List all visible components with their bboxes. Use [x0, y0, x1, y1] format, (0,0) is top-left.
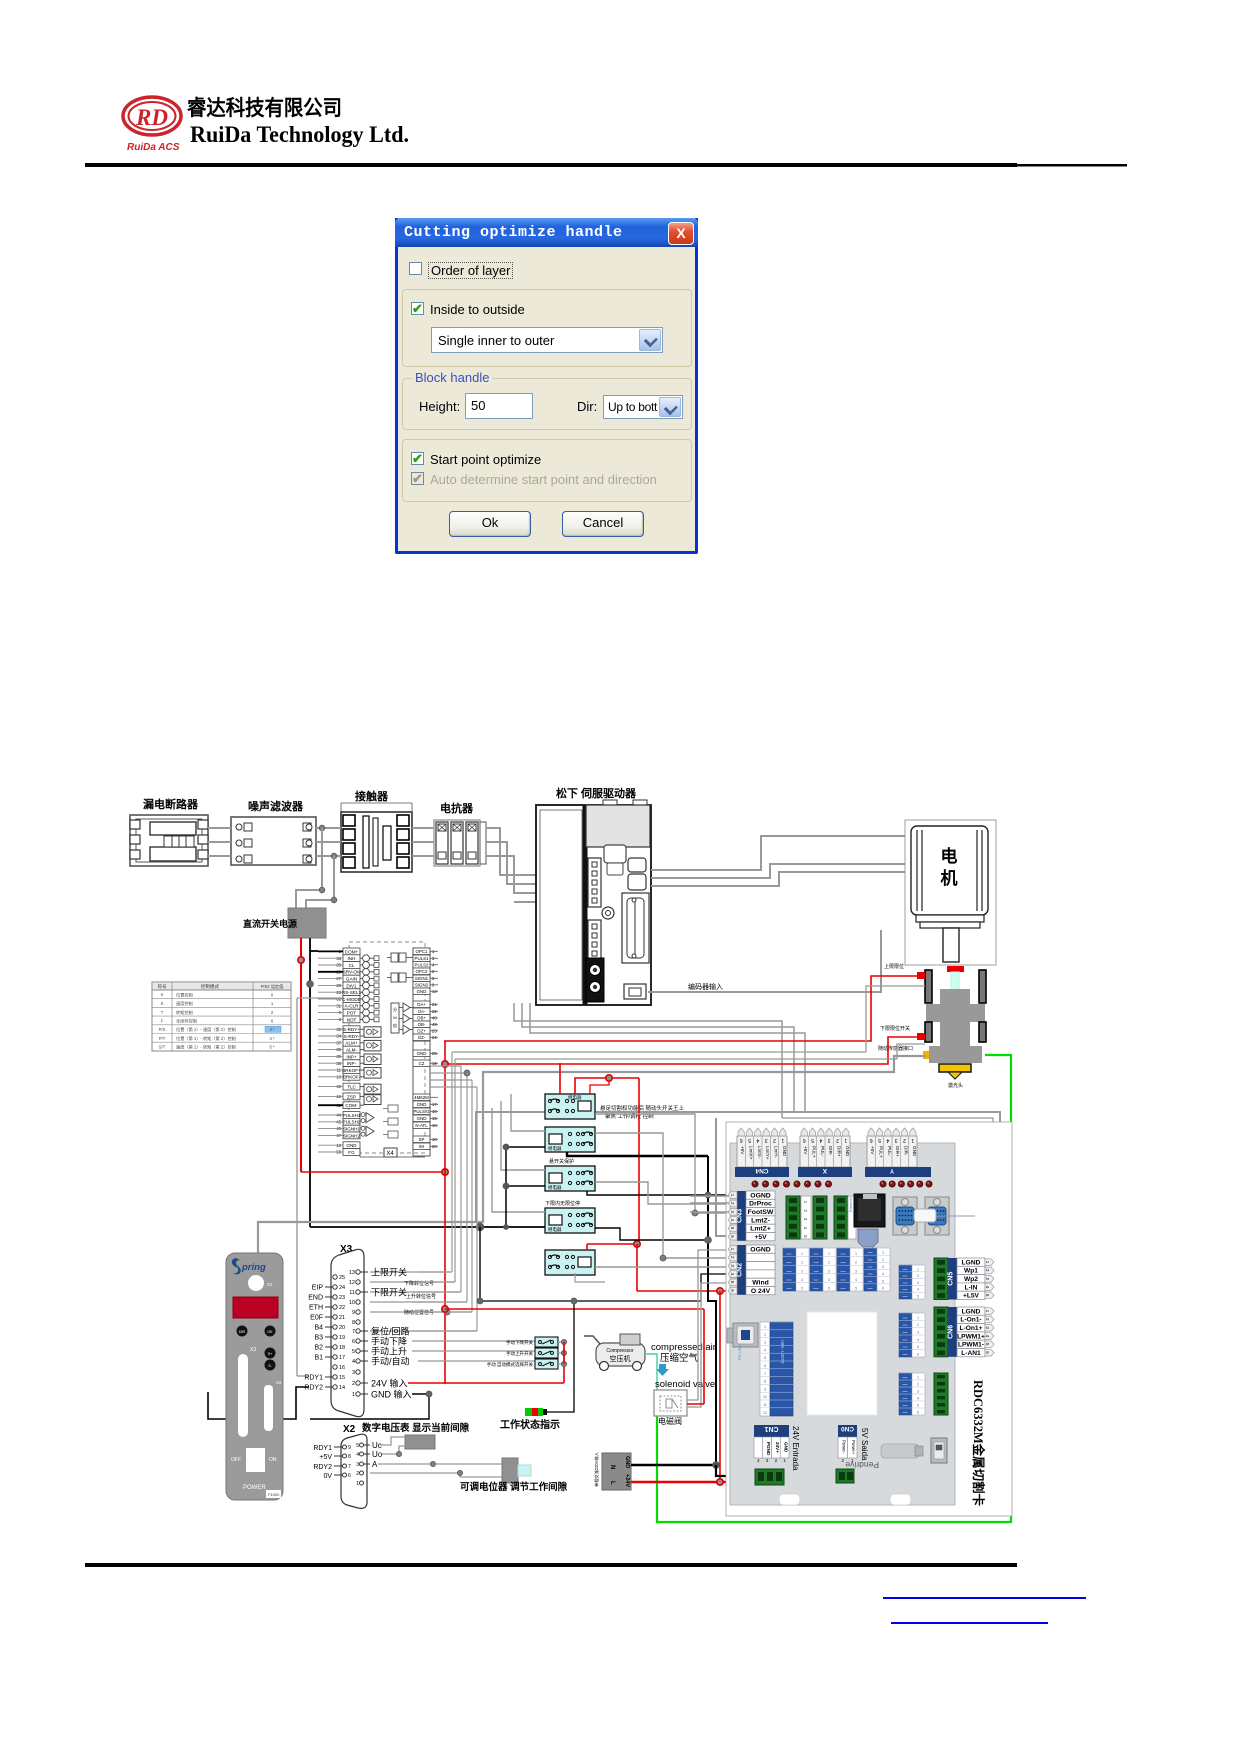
svg-text:下降转位信号: 下降转位信号: [404, 1280, 434, 1287]
svg-text:18: 18: [339, 1345, 345, 1351]
svg-text:LGND: LGND: [962, 1259, 981, 1266]
svg-text:OPC2: OPC2: [416, 969, 429, 974]
svg-text:7: 7: [352, 1329, 355, 1335]
svg-text:1: 1: [917, 1267, 919, 1271]
svg-text:OB-: OB-: [418, 1022, 426, 1027]
svg-text:LmtX-: LmtX-: [757, 1146, 762, 1159]
svg-text:3: 3: [895, 1137, 898, 1143]
svg-text:══: ══: [867, 1287, 873, 1291]
svg-text:位置控制: 位置控制: [176, 991, 193, 998]
svg-text:TLC: TLC: [347, 1085, 356, 1090]
svg-text:20: 20: [339, 1325, 345, 1331]
svg-text:OB+: OB+: [417, 1016, 426, 1021]
svg-text:INP+: INP+: [346, 1054, 357, 1059]
svg-text:接触器: 接触器: [355, 789, 389, 803]
svg-text:P/S: P/S: [159, 1027, 166, 1032]
svg-text:S: S: [161, 1001, 164, 1006]
svg-text:6: 6: [803, 1137, 806, 1143]
svg-text:X1: X1: [267, 1282, 273, 1287]
svg-text:1: 1: [844, 1137, 847, 1143]
svg-text:3: 3: [828, 1137, 831, 1143]
svg-text:══: ══: [840, 1278, 846, 1282]
svg-text:SIGNH1: SIGNH1: [343, 1127, 361, 1132]
svg-text:转矩控制: 转矩控制: [176, 1009, 193, 1016]
svg-text:下限限位开关: 下限限位开关: [880, 1025, 910, 1032]
svg-text:9: 9: [352, 1310, 355, 1316]
svg-text:单相交流220V输入: 单相交流220V输入: [593, 1451, 600, 1487]
svg-text:3: 3: [356, 1462, 359, 1468]
svg-text:8: 8: [352, 1320, 355, 1326]
svg-text:DrProc: DrProc: [749, 1201, 772, 1208]
svg-text:Power-: Power-: [842, 1440, 847, 1454]
svg-text:SIGN2: SIGN2: [415, 983, 429, 988]
svg-text:Uo: Uo: [372, 1450, 383, 1459]
svg-text:空压机: 空压机: [610, 1354, 631, 1363]
svg-text:FG: FG: [348, 1150, 355, 1155]
svg-text:5: 5: [764, 1356, 766, 1360]
svg-text:3: 3: [801, 1269, 803, 1273]
svg-text:SIGN1: SIGN1: [415, 976, 429, 981]
svg-text:LGND: LGND: [962, 1308, 981, 1315]
svg-text:SP: SP: [419, 1137, 425, 1142]
svg-text:══: ══: [902, 1295, 908, 1299]
svg-text:S+: S+: [268, 1352, 273, 1356]
svg-text:CZ: CZ: [419, 1061, 425, 1066]
svg-text:COM+: COM+: [345, 949, 359, 954]
svg-text:控制模式: 控制模式: [201, 983, 219, 990]
svg-text:══: ══: [902, 1345, 908, 1349]
svg-text:24: 24: [339, 1285, 345, 1291]
svg-text:可调电位器 调节工作间隙: 可调电位器 调节工作间隙: [460, 1481, 568, 1493]
svg-text:14: 14: [339, 1385, 345, 1391]
svg-text:4: 4: [917, 1338, 919, 1342]
svg-text:S-RDY-: S-RDY-: [344, 1034, 360, 1039]
svg-text:CN4: CN4: [755, 1167, 768, 1174]
svg-text:LmtX+: LmtX+: [749, 1146, 754, 1160]
svg-text:4: 4: [801, 1278, 803, 1282]
svg-text:LPWM1-: LPWM1-: [958, 1342, 984, 1349]
svg-text:+24V: +24V: [624, 1474, 630, 1487]
svg-text:Compressor: Compressor: [606, 1348, 634, 1354]
svg-text:══: ══: [840, 1261, 846, 1265]
svg-text:1: 1: [882, 1251, 884, 1255]
svg-text:24V 输入: 24V 输入: [371, 1378, 408, 1389]
svg-text:CN3: CN3: [737, 1209, 744, 1223]
svg-text:电磁阀: 电磁阀: [658, 1416, 682, 1426]
svg-text:A-CLR: A-CLR: [345, 1004, 359, 1009]
svg-text:GND: GND: [784, 1442, 789, 1453]
svg-text:4: 4: [882, 1272, 884, 1276]
svg-text:GND: GND: [624, 1456, 630, 1468]
svg-text:P/T: P/T: [159, 1036, 166, 1041]
svg-text:松下 伺服驱动器: 松下 伺服驱动器: [556, 786, 637, 800]
svg-text:3: 3: [917, 1390, 919, 1394]
svg-text:OA+: OA+: [417, 1002, 426, 1007]
svg-text:PULS/G: PULS/G: [413, 1109, 430, 1114]
svg-text:GND: GND: [782, 1146, 787, 1157]
svg-text:4: 4: [855, 1278, 857, 1282]
svg-text:12: 12: [763, 1411, 767, 1415]
svg-text:══: ══: [902, 1267, 908, 1271]
svg-text:继电器: 继电器: [548, 1184, 562, 1191]
svg-text:3: 3: [855, 1269, 857, 1273]
svg-text:继电器: 继电器: [548, 1226, 562, 1233]
svg-text:23: 23: [339, 1295, 345, 1301]
svg-text:位置（第 1）- 转矩（第 2）控制: 位置（第 1）- 转矩（第 2）控制: [176, 1035, 236, 1042]
svg-text:全闭环控制: 全闭环控制: [176, 1018, 197, 1025]
svg-text:5: 5: [352, 1349, 355, 1355]
svg-text:6: 6: [917, 1353, 919, 1357]
svg-text:4: 4: [764, 1348, 766, 1352]
svg-text:2: 2: [836, 1137, 839, 1143]
svg-text:══: ══: [786, 1287, 792, 1291]
svg-text:5: 5: [878, 1137, 881, 1143]
svg-text:5 *: 5 *: [269, 1045, 274, 1050]
svg-text:══: ══: [786, 1278, 792, 1282]
svg-text:DIR+: DIR+: [837, 1146, 842, 1157]
svg-text:17: 17: [339, 1355, 345, 1361]
svg-text:5V Saida: 5V Saida: [860, 1428, 869, 1461]
svg-text:+L5V: +L5V: [963, 1293, 980, 1300]
svg-text:12: 12: [349, 1280, 355, 1286]
svg-text:══: ══: [813, 1261, 819, 1265]
svg-text:RS-SEL1: RS-SEL1: [342, 990, 362, 995]
svg-text:SIGNH2: SIGNH2: [343, 1133, 361, 1138]
svg-text:══: ══: [813, 1278, 819, 1282]
svg-text:X2: X2: [343, 1424, 356, 1435]
svg-text:6: 6: [764, 1364, 766, 1368]
svg-text:══: ══: [867, 1272, 873, 1276]
svg-text:C-MODE: C-MODE: [342, 997, 361, 1002]
svg-text:══: ══: [840, 1287, 846, 1291]
svg-text:T: T: [161, 1010, 164, 1015]
svg-text:分: 分: [393, 1006, 397, 1012]
svg-text:GND: GND: [417, 1102, 427, 1107]
svg-text:6: 6: [740, 1137, 743, 1143]
svg-text:PUL-: PUL-: [820, 1146, 825, 1157]
svg-text:RDY2: RDY2: [304, 1385, 323, 1392]
svg-text:6: 6: [882, 1287, 884, 1291]
svg-text:Ethernet: Ethernet: [848, 1196, 853, 1212]
svg-text:6: 6: [870, 1137, 873, 1143]
svg-text:3: 3: [882, 1265, 884, 1269]
svg-text:NOT: NOT: [347, 1017, 357, 1022]
svg-text:FootSW: FootSW: [748, 1209, 774, 1216]
svg-text:2: 2: [917, 1323, 919, 1327]
svg-text:9: 9: [348, 1445, 351, 1451]
svg-text:直流开关电源: 直流开关电源: [243, 918, 297, 929]
svg-text:solenoid valve: solenoid valve: [655, 1379, 715, 1390]
svg-text:LmtZ+: LmtZ+: [750, 1226, 771, 1233]
svg-text:4 *: 4 *: [269, 1036, 274, 1041]
svg-text:compressed air: compressed air: [651, 1342, 716, 1353]
svg-text:+5V: +5V: [803, 1146, 808, 1155]
svg-text:+5V: +5V: [319, 1454, 332, 1461]
svg-text:DIR-: DIR-: [904, 1146, 909, 1156]
svg-text:M: M: [393, 1015, 396, 1020]
svg-text:S-RDY+: S-RDY+: [343, 1027, 360, 1032]
svg-text:L-On1+: L-On1+: [960, 1325, 983, 1332]
svg-text:16: 16: [339, 1365, 345, 1371]
svg-text:DIR+: DIR+: [895, 1146, 900, 1157]
svg-text:10: 10: [349, 1300, 355, 1306]
svg-text:7: 7: [764, 1372, 766, 1376]
svg-text:ALM+: ALM+: [345, 1041, 357, 1046]
svg-text:POT: POT: [347, 1011, 357, 1016]
svg-text:编码器输入: 编码器输入: [688, 982, 723, 991]
svg-text:OPC1: OPC1: [416, 949, 429, 954]
svg-text:22: 22: [339, 1305, 345, 1311]
svg-text:Pr02 设定值: Pr02 设定值: [261, 983, 284, 990]
svg-text:GND 输入: GND 输入: [371, 1389, 412, 1400]
svg-text:PUL+: PUL+: [812, 1146, 817, 1158]
svg-text:COM-: COM-: [345, 1103, 358, 1108]
svg-text:Wp1: Wp1: [964, 1268, 978, 1275]
svg-text:1: 1: [781, 1137, 784, 1143]
svg-text:B3: B3: [314, 1335, 323, 1342]
svg-text:+5V: +5V: [870, 1146, 875, 1155]
svg-text:4: 4: [917, 1288, 919, 1292]
svg-text:1: 1: [352, 1392, 355, 1398]
svg-text:3: 3: [828, 1269, 830, 1273]
svg-text:PULSH1: PULSH1: [343, 1113, 361, 1118]
svg-text:GND: GND: [912, 1146, 917, 1157]
svg-text:符号: 符号: [158, 983, 167, 990]
svg-text:ZSP: ZSP: [347, 1094, 356, 1099]
svg-text:PULSH2: PULSH2: [343, 1120, 361, 1125]
svg-text:手动下降开关: 手动下降开关: [506, 1339, 533, 1346]
svg-text:5: 5: [917, 1404, 919, 1408]
svg-text:══: ══: [902, 1281, 908, 1285]
svg-text:RDC6332M金属切割卡: RDC6332M金属切割卡: [971, 1380, 986, 1506]
svg-text:OA-: OA-: [418, 1009, 426, 1014]
svg-text:PULS1: PULS1: [415, 956, 429, 961]
svg-text:pring: pring: [241, 1262, 266, 1273]
svg-text:24V Entrada: 24V Entrada: [791, 1426, 800, 1471]
svg-text:CN2: CN2: [737, 1263, 744, 1277]
svg-text:2: 2: [917, 1274, 919, 1278]
svg-text:悬开关保护: 悬开关保护: [549, 1158, 574, 1165]
svg-text:O 24V: O 24V: [751, 1288, 771, 1295]
svg-text:3: 3: [917, 1281, 919, 1285]
svg-text:══: ══: [840, 1269, 846, 1273]
svg-text:5: 5: [917, 1295, 919, 1299]
svg-text:Wp2: Wp2: [964, 1276, 978, 1283]
svg-text:══: ══: [902, 1397, 908, 1401]
svg-text:══: ══: [902, 1390, 908, 1394]
svg-text:INP-: INP-: [347, 1061, 357, 1066]
svg-text:速度控制: 速度控制: [176, 1000, 193, 1007]
svg-text:4: 4: [828, 1278, 830, 1282]
svg-text:8: 8: [348, 1454, 351, 1460]
svg-text:3: 3: [352, 1370, 355, 1376]
svg-text:上限开关: 上限开关: [371, 1267, 407, 1278]
svg-text:CN5: CN5: [948, 1272, 955, 1286]
svg-text:21: 21: [339, 1315, 345, 1321]
svg-text:══: ══: [902, 1331, 908, 1335]
svg-text:GND: GND: [845, 1146, 850, 1157]
svg-text:RDY2: RDY2: [313, 1464, 332, 1471]
svg-text:继电器: 继电器: [548, 1145, 562, 1152]
svg-text:RDY1: RDY1: [313, 1445, 332, 1452]
svg-text:X2: X2: [276, 1380, 282, 1385]
svg-text:4M62M: 4M62M: [414, 1095, 429, 1100]
svg-text:6: 6: [917, 1411, 919, 1415]
svg-text:OZ+: OZ+: [417, 1029, 426, 1034]
svg-text:GND: GND: [417, 989, 427, 994]
svg-text:OGND: OGND: [750, 1192, 770, 1199]
svg-text:电: 电: [941, 846, 958, 866]
svg-text:INH: INH: [348, 956, 356, 961]
svg-text:0V: 0V: [323, 1473, 332, 1480]
svg-text:机: 机: [941, 868, 958, 888]
svg-text:4: 4: [356, 1452, 359, 1458]
svg-text:U9X--U26T3: U9X--U26T3: [780, 1340, 785, 1364]
svg-text:══: ══: [840, 1252, 846, 1256]
svg-text:PC-USB: PC-USB: [737, 1345, 742, 1360]
svg-text:5: 5: [811, 1137, 814, 1143]
svg-text:2: 2: [773, 1137, 776, 1143]
svg-text:随动传感器接口: 随动传感器接口: [878, 1045, 913, 1052]
svg-text:手动/自动: 手动/自动: [371, 1356, 410, 1367]
svg-text:25: 25: [339, 1275, 345, 1281]
svg-text:GND: GND: [417, 1051, 427, 1056]
svg-text:N-ATL: N-ATL: [415, 1123, 428, 1128]
svg-text:聚焦 工作/调校 控制: 聚焦 工作/调校 控制: [605, 1112, 654, 1120]
svg-text:5: 5: [828, 1287, 830, 1291]
svg-text:══: ══: [902, 1383, 908, 1387]
svg-text:══: ══: [786, 1269, 792, 1273]
svg-text:══: ══: [902, 1376, 908, 1380]
svg-text:1: 1: [917, 1316, 919, 1320]
svg-text:Y: Y: [889, 1167, 894, 1174]
svg-text:1: 1: [911, 1137, 914, 1143]
svg-text:X4: X4: [386, 1151, 394, 1157]
svg-text:BRKOF+: BRKOF+: [342, 1068, 361, 1073]
svg-text:ETH: ETH: [309, 1305, 323, 1312]
svg-text:ALM-: ALM-: [346, 1048, 357, 1053]
svg-text:══: ══: [902, 1411, 908, 1415]
svg-text:══: ══: [867, 1265, 873, 1269]
svg-text:继电器: 继电器: [568, 1094, 582, 1101]
svg-text:B4: B4: [314, 1325, 323, 1332]
svg-text:5: 5: [917, 1345, 919, 1349]
svg-text:LPWM1+: LPWM1+: [957, 1333, 985, 1340]
svg-text:POWER: POWER: [243, 1485, 266, 1491]
svg-text:2: 2: [352, 1381, 355, 1387]
svg-text:══: ══: [813, 1252, 819, 1256]
svg-text:OZ-: OZ-: [418, 1035, 426, 1040]
svg-text:3 *: 3 *: [269, 1027, 274, 1032]
svg-text:工作状态指示: 工作状态指示: [500, 1418, 560, 1431]
svg-text:BRKOF-: BRKOF-: [343, 1075, 361, 1080]
svg-text:2: 2: [801, 1261, 803, 1265]
svg-text:SRV-ON: SRV-ON: [343, 970, 361, 975]
svg-text:1: 1: [356, 1481, 359, 1487]
svg-text:X3: X3: [250, 1347, 256, 1353]
svg-text:L-On1-: L-On1-: [960, 1317, 981, 1324]
svg-text:3: 3: [917, 1331, 919, 1335]
svg-text:4: 4: [886, 1137, 889, 1143]
svg-text:5: 5: [855, 1287, 857, 1291]
svg-text:LmtZ-: LmtZ-: [751, 1217, 770, 1224]
svg-text:24V+: 24V+: [775, 1442, 780, 1453]
svg-text:Wind: Wind: [752, 1280, 769, 1287]
svg-text:CN6: CN6: [948, 1325, 955, 1339]
svg-text:N: N: [609, 1465, 615, 1469]
svg-text:══: ══: [867, 1279, 873, 1283]
svg-text:LmtY-: LmtY-: [774, 1146, 779, 1158]
svg-text:E0F: E0F: [310, 1315, 323, 1322]
svg-text:10: 10: [763, 1395, 767, 1399]
svg-text:X: X: [822, 1167, 827, 1174]
svg-text:4: 4: [819, 1137, 822, 1143]
svg-text:电抗器: 电抗器: [440, 801, 474, 815]
svg-text:══: ══: [867, 1251, 873, 1255]
svg-text:2: 2: [356, 1471, 359, 1477]
svg-text:6: 6: [348, 1473, 351, 1479]
svg-text:══: ══: [902, 1353, 908, 1357]
svg-text:══: ══: [902, 1288, 908, 1292]
svg-text:L: L: [609, 1481, 615, 1485]
svg-text:手动下降: 手动下降: [371, 1336, 407, 1347]
svg-text:B2: B2: [314, 1345, 323, 1352]
svg-text:1: 1: [801, 1252, 803, 1256]
svg-text:OGND: OGND: [750, 1246, 770, 1253]
svg-text:3: 3: [764, 1341, 766, 1345]
svg-text:F1000: F1000: [268, 1492, 280, 1497]
svg-text:数字电压表 显示当前间隙: 数字电压表 显示当前间隙: [361, 1422, 470, 1434]
svg-text:2: 2: [917, 1383, 919, 1387]
svg-text:Power+: Power+: [851, 1440, 856, 1455]
svg-text:5: 5: [748, 1137, 751, 1143]
svg-text:B1: B1: [314, 1355, 323, 1362]
svg-text:复位/回路: 复位/回路: [371, 1326, 410, 1337]
svg-text:2: 2: [903, 1137, 906, 1143]
svg-text:PUL-: PUL-: [887, 1146, 892, 1157]
svg-text:下限开关: 下限开关: [371, 1287, 407, 1298]
svg-text:GND: GND: [417, 1116, 427, 1121]
svg-text:══: ══: [902, 1323, 908, 1327]
svg-text:3: 3: [765, 1137, 768, 1143]
svg-text:1: 1: [828, 1252, 830, 1256]
svg-text:══: ══: [902, 1316, 908, 1320]
svg-text:══: ══: [902, 1274, 908, 1278]
svg-text:11: 11: [763, 1403, 767, 1407]
svg-text:══: ══: [867, 1258, 873, 1262]
svg-text:F: F: [161, 1019, 164, 1024]
svg-text:2: 2: [828, 1261, 830, 1265]
svg-text:PGND: PGND: [766, 1442, 771, 1456]
svg-text:P: P: [161, 992, 164, 997]
svg-text:+5V: +5V: [740, 1146, 745, 1155]
svg-text:2: 2: [855, 1261, 857, 1265]
svg-text:DIR-: DIR-: [828, 1146, 833, 1156]
svg-text:上限限位: 上限限位: [884, 963, 904, 970]
svg-text:1: 1: [764, 1325, 766, 1329]
svg-text:DIV1: DIV1: [346, 983, 357, 988]
svg-text:压缩空气: 压缩空气: [660, 1352, 699, 1364]
svg-text:4: 4: [352, 1359, 355, 1365]
svg-text:11: 11: [349, 1290, 355, 1296]
svg-text:GAIN: GAIN: [346, 977, 357, 982]
svg-text:══: ══: [813, 1269, 819, 1273]
svg-text:A: A: [372, 1460, 378, 1469]
svg-text:倍: 倍: [393, 1022, 397, 1028]
svg-text:S/T: S/T: [159, 1045, 166, 1050]
svg-text:+5V: +5V: [754, 1234, 767, 1241]
svg-text:噪声滤波器: 噪声滤波器: [248, 799, 304, 813]
